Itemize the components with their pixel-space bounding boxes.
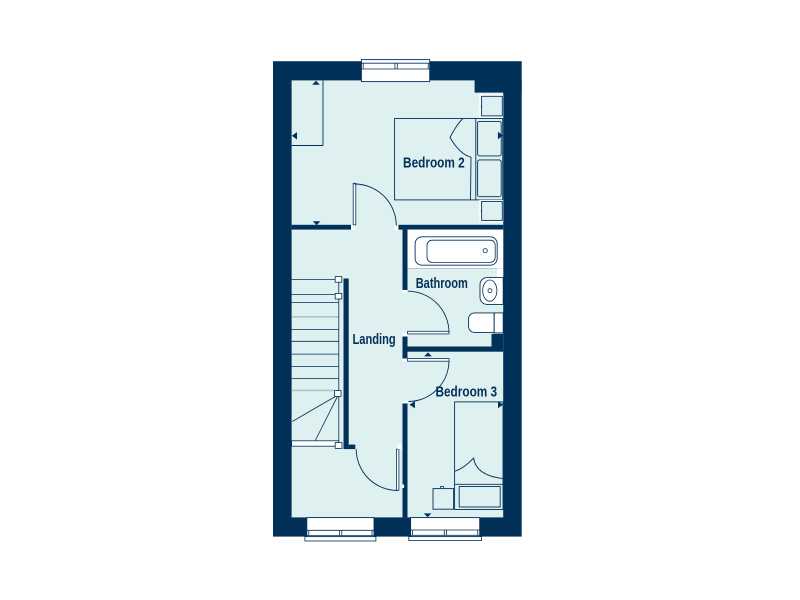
svg-text:Landing: Landing — [353, 332, 396, 348]
svg-text:Bedroom 2: Bedroom 2 — [403, 156, 465, 172]
svg-text:Bedroom 3: Bedroom 3 — [435, 385, 497, 401]
svg-text:Bathroom: Bathroom — [416, 276, 468, 292]
